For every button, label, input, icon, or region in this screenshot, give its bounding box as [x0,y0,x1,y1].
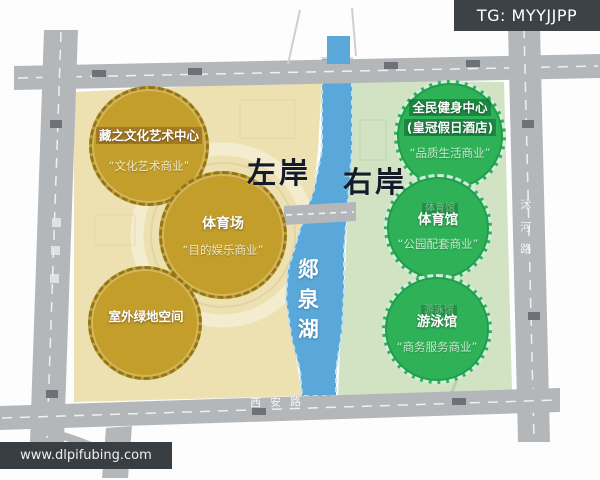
natatorium-title: 游泳馆 [397,314,477,331]
gymnasium-subtitle: “公园配套商业” [380,237,496,251]
fitness-center-title-text: 全民健身中心 [409,99,490,116]
lake-name-label: 郯泉湖 [294,248,320,358]
road-label-shuhe-road: 沭河路 [518,184,532,280]
culture-center-subtitle: “文化艺术商业” [94,159,204,173]
site-watermark: www.dlpifubing.com [0,442,172,469]
gymnasium-title: 体育馆 [398,212,478,229]
fitness-center-subtitle: “品质生活商业” [392,146,508,160]
lake-bridge [284,202,356,225]
culture-center-title-text: 藏之文化艺术中心 [96,127,202,144]
right-bank-label: 右岸 [342,164,408,200]
natatorium-subtitle: “商务服务商业” [378,340,496,354]
green-space-title: 室外绿地空间 [86,309,206,325]
stadium-title: 体育场 [173,216,273,234]
tg-watermark-badge: TG: MYYJJPP [454,0,600,31]
road-label-xian-road: 西安路 [240,395,320,411]
fitness-center-hotel: (皇冠假日酒店) [390,120,510,136]
left-bank-label: 左岸 [246,155,312,191]
stadium-subtitle: “目的娱乐商业” [156,243,290,257]
planning-map: 藏之文化艺术中心 “文化艺术商业” 体育场 “目的娱乐商业” 室外绿地空间 全民… [0,0,600,480]
culture-center-title: 藏之文化艺术中心 [86,128,212,144]
fitness-center-title: 全民健身中心 [396,100,504,116]
lake-channel-north [327,36,350,64]
fitness-center-hotel-text: (皇冠假日酒店) [404,119,496,136]
